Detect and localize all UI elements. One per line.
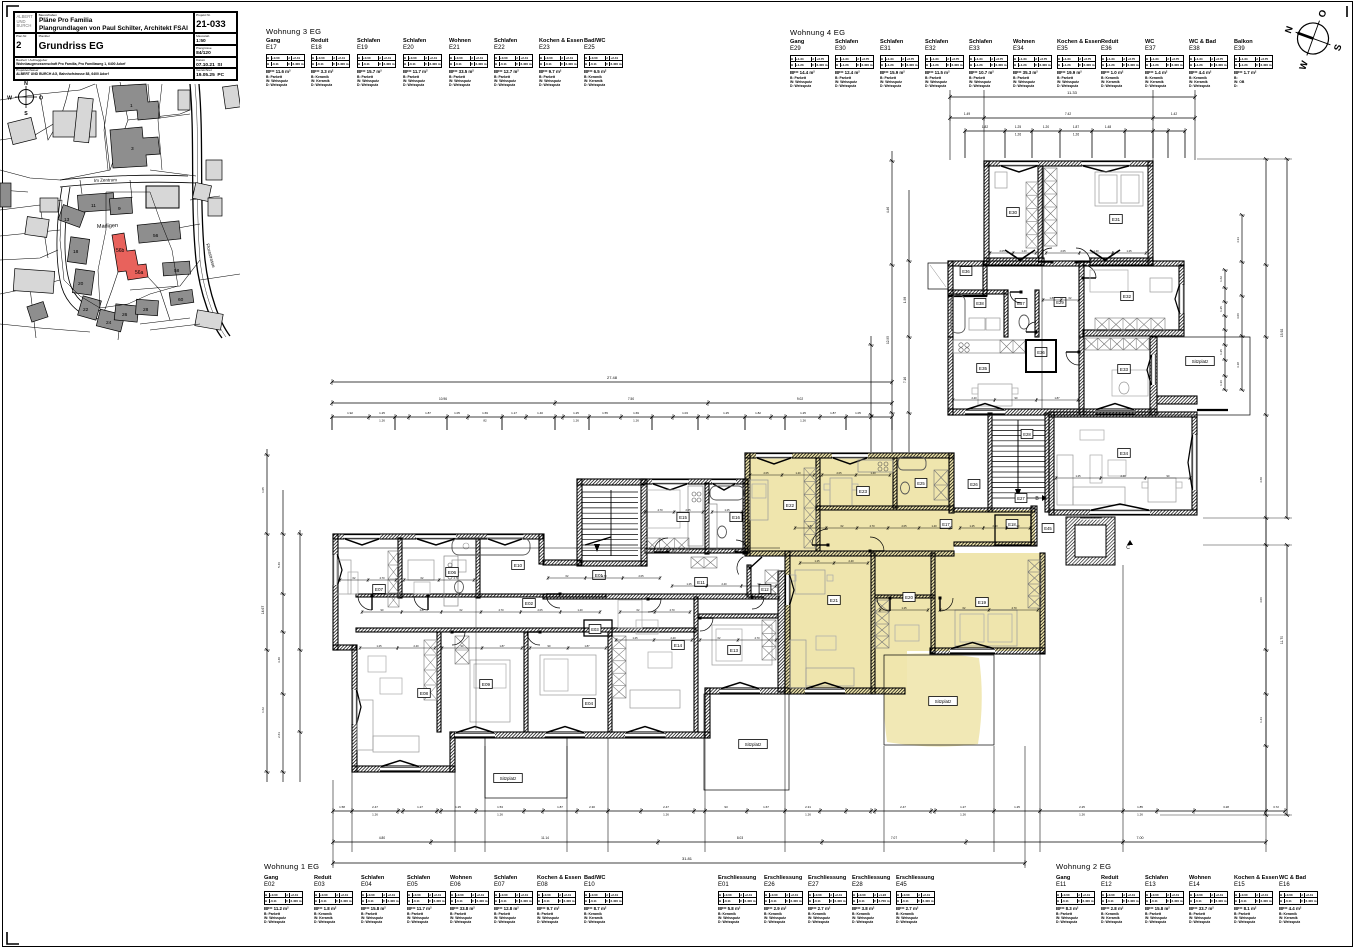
svg-text:4.70: 4.70 [498,608,504,612]
svg-text:14.67: 14.67 [261,606,265,615]
svg-text:4.06: 4.06 [1259,597,1263,603]
svg-text:2.05: 2.05 [763,471,769,475]
svg-text:1.26: 1.26 [379,419,385,423]
svg-text:E07: E07 [375,587,384,592]
svg-text:7.50: 7.50 [628,397,634,401]
svg-text:E26: E26 [970,482,978,487]
svg-text:1.25: 1.25 [455,805,461,809]
svg-text:1.27: 1.27 [417,805,423,809]
svg-text:2.05: 2.05 [685,508,691,512]
svg-text:1.26: 1.26 [960,813,966,817]
svg-text:E06: E06 [448,570,457,575]
svg-text:1.26: 1.26 [573,419,579,423]
svg-text:1.03: 1.03 [682,411,688,415]
svg-text:E02: E02 [525,601,534,606]
svg-text:2.61: 2.61 [277,732,281,738]
svg-text:1.36: 1.36 [1219,380,1223,386]
svg-text:2.40: 2.40 [413,644,419,648]
svg-text:1.26: 1.26 [663,813,669,817]
svg-text:1.25: 1.25 [1219,306,1223,312]
svg-text:2.30: 2.30 [589,805,595,809]
svg-text:1.87: 1.87 [1054,396,1060,400]
svg-text:E38: E38 [976,301,984,306]
svg-text:4.70: 4.70 [657,508,663,512]
svg-text:E37: E37 [1017,301,1025,306]
svg-text:7.16: 7.16 [903,377,907,383]
svg-text:E13: E13 [730,648,739,653]
svg-text:3.06: 3.06 [1236,313,1240,319]
svg-text:2.40: 2.40 [992,524,998,528]
svg-text:1.87: 1.87 [830,411,836,415]
svg-text:4.60: 4.60 [1259,477,1263,483]
svg-text:E20: E20 [905,595,913,600]
svg-text:1.25: 1.25 [1014,805,1020,809]
svg-text:2.40: 2.40 [670,636,676,640]
svg-text:2.05: 2.05 [638,574,644,578]
svg-text:1.26: 1.26 [1079,813,1085,817]
svg-text:E16: E16 [732,515,740,520]
svg-text:2.47: 2.47 [663,805,669,809]
svg-text:1.25: 1.25 [1219,349,1223,355]
svg-text:1.40: 1.40 [870,471,876,475]
svg-text:2.40: 2.40 [971,396,977,400]
svg-text:1.26: 1.26 [497,813,503,817]
svg-text:1.25: 1.25 [573,411,579,415]
svg-text:1.48: 1.48 [1105,125,1111,129]
svg-text:E19: E19 [978,600,987,605]
svg-text:1.05: 1.05 [855,411,861,415]
svg-text:62: 62 [421,576,424,580]
svg-text:4.70: 4.70 [453,576,459,580]
svg-text:4.80: 4.80 [379,836,385,840]
svg-text:1.87: 1.87 [557,805,563,809]
svg-text:90: 90 [1167,474,1170,478]
svg-text:1.87: 1.87 [584,644,590,648]
svg-text:1.43: 1.43 [1259,717,1263,723]
svg-text:E34: E34 [1120,451,1129,456]
svg-text:1.17: 1.17 [511,411,517,415]
svg-text:1.87: 1.87 [499,644,505,648]
svg-text:1.25: 1.25 [800,411,806,415]
svg-text:1.85: 1.85 [1137,805,1143,809]
svg-text:1.53: 1.53 [497,805,503,809]
svg-text:1.26: 1.26 [805,813,811,817]
svg-text:2.05: 2.05 [537,608,543,612]
svg-text:E32: E32 [1123,294,1132,299]
svg-text:1.25: 1.25 [376,644,382,648]
svg-text:E30: E30 [1009,210,1018,215]
svg-text:1.25: 1.25 [1015,125,1021,129]
svg-text:11.14: 11.14 [541,836,549,840]
svg-text:E33: E33 [1120,367,1129,372]
svg-text:1.92: 1.92 [347,411,353,415]
svg-text:62: 62 [460,608,463,612]
svg-text:1.26: 1.26 [800,419,806,423]
svg-text:2.40: 2.40 [848,559,854,563]
svg-text:B: B [1035,496,1039,502]
svg-text:4.46: 4.46 [886,207,890,213]
svg-text:2.31: 2.31 [805,805,811,809]
svg-text:E45: E45 [1044,526,1052,531]
svg-text:E08: E08 [420,691,429,696]
svg-text:1.62: 1.62 [1219,276,1223,282]
svg-text:4.70: 4.70 [754,636,760,640]
svg-text:2.05: 2.05 [1060,249,1066,253]
svg-text:90: 90 [548,644,551,648]
svg-text:9.02: 9.02 [797,397,803,401]
svg-text:7.00: 7.00 [1137,836,1144,840]
svg-text:1.40: 1.40 [1021,249,1027,253]
svg-text:1.55: 1.55 [602,411,608,415]
svg-text:1.40: 1.40 [537,411,543,415]
svg-text:10.96: 10.96 [439,397,447,401]
svg-text:4.70: 4.70 [669,608,675,612]
svg-text:1.40: 1.40 [795,471,801,475]
svg-text:1.40: 1.40 [931,524,937,528]
svg-text:2.05: 2.05 [836,471,842,475]
svg-text:1.26: 1.26 [1073,133,1079,137]
svg-text:1.25: 1.25 [814,559,820,563]
svg-text:E28: E28 [1023,432,1031,437]
svg-text:1.62: 1.62 [261,707,265,713]
svg-text:1.26: 1.26 [1137,813,1143,817]
svg-text:E36: E36 [1037,350,1045,355]
svg-text:1.25: 1.25 [632,636,638,640]
svg-text:1.25: 1.25 [1075,474,1081,478]
svg-text:4.70: 4.70 [601,574,607,578]
svg-text:E21: E21 [830,598,839,603]
svg-text:2.05: 2.05 [901,524,907,528]
svg-text:1.25: 1.25 [723,411,729,415]
svg-text:62: 62 [718,636,721,640]
svg-text:1.26: 1.26 [1015,133,1021,137]
svg-text:1.25: 1.25 [969,524,975,528]
svg-text:93: 93 [724,805,728,809]
svg-text:E25: E25 [917,481,925,486]
svg-text:1.26: 1.26 [372,813,378,817]
svg-text:11.33: 11.33 [1067,90,1077,95]
svg-text:12.95: 12.95 [886,336,890,344]
svg-text:E31: E31 [1112,217,1121,222]
svg-text:1.82: 1.82 [982,125,988,129]
svg-text:2.47: 2.47 [900,805,906,809]
svg-text:62: 62 [637,608,640,612]
svg-text:E35: E35 [979,366,988,371]
svg-text:1.87: 1.87 [1049,296,1055,300]
svg-text:1.05: 1.05 [454,411,460,415]
svg-text:1.82: 1.82 [755,411,761,415]
svg-text:E15: E15 [679,515,687,520]
svg-text:90: 90 [381,608,384,612]
svg-text:E14: E14 [674,643,683,648]
svg-text:4.33: 4.33 [1236,237,1240,243]
svg-text:4.70: 4.70 [379,576,385,580]
svg-text:1.05: 1.05 [261,487,265,493]
svg-text:1.26: 1.26 [633,419,639,423]
svg-text:2.25: 2.25 [1079,805,1085,809]
svg-text:1.42: 1.42 [1171,112,1177,116]
svg-text:1.25: 1.25 [379,411,385,415]
svg-text:E18: E18 [1008,522,1016,527]
svg-text:1.40: 1.40 [577,608,583,612]
svg-text:3.40: 3.40 [277,657,281,663]
svg-text:3.28: 3.28 [1223,805,1229,809]
svg-text:62: 62 [566,574,569,578]
svg-text:1.25: 1.25 [901,606,907,610]
svg-text:82: 82 [483,419,487,423]
svg-text:1.20: 1.20 [1043,125,1049,129]
svg-text:1.25: 1.25 [1126,249,1132,253]
svg-text:15.92: 15.92 [1280,329,1284,338]
svg-text:27.48: 27.48 [607,375,618,380]
svg-text:1.69: 1.69 [633,411,639,415]
svg-text:1.25: 1.25 [724,508,730,512]
svg-text:62: 62 [353,576,356,580]
svg-text:E27: E27 [1017,496,1025,501]
svg-text:1.49: 1.49 [964,112,970,116]
svg-text:E22: E22 [786,503,795,508]
svg-text:7.42: 7.42 [1065,112,1071,116]
svg-text:7.07: 7.07 [891,836,897,840]
svg-text:Sitzplatz: Sitzplatz [1192,359,1209,364]
svg-text:1.58: 1.58 [339,805,345,809]
svg-text:4.70: 4.70 [1011,606,1017,610]
svg-text:2.40: 2.40 [1120,474,1126,478]
svg-text:1.27: 1.27 [960,805,966,809]
svg-text:E09: E09 [482,682,491,687]
svg-text:E10: E10 [514,563,523,568]
svg-text:E12: E12 [761,587,769,592]
svg-text:31.81: 31.81 [682,856,693,861]
svg-text:1.87: 1.87 [807,524,813,528]
svg-text:C: C [1126,545,1130,551]
svg-text:5.46: 5.46 [277,562,281,568]
svg-text:1.87: 1.87 [1073,125,1079,129]
svg-text:2.47: 2.47 [372,805,378,809]
svg-text:Sitzplatz: Sitzplatz [745,742,762,747]
svg-text:E36: E36 [962,269,970,274]
svg-text:E04: E04 [585,701,594,706]
svg-text:1.98: 1.98 [903,297,907,303]
svg-text:90: 90 [1015,396,1018,400]
svg-text:E23: E23 [859,489,868,494]
svg-text:62: 62 [1069,296,1072,300]
svg-text:1.40: 1.40 [1093,249,1099,253]
svg-text:1.69: 1.69 [482,411,488,415]
svg-text:11.70: 11.70 [1280,636,1284,644]
svg-text:2.05: 2.05 [999,249,1005,253]
svg-text:3.18: 3.18 [1236,362,1240,368]
svg-text:1.67: 1.67 [763,805,769,809]
svg-text:1.25: 1.25 [686,582,692,586]
svg-text:E03: E03 [591,627,599,632]
svg-text:1.87: 1.87 [425,411,431,415]
svg-text:4.70: 4.70 [869,524,875,528]
svg-text:3.72: 3.72 [1273,805,1279,809]
svg-text:8.03: 8.03 [737,836,743,840]
svg-text:1.87: 1.87 [419,608,425,612]
svg-text:Sitzplatz: Sitzplatz [935,699,952,704]
svg-text:2.40: 2.40 [721,582,727,586]
svg-text:E17: E17 [942,522,950,527]
svg-text:E11: E11 [697,580,705,585]
svg-text:Sitzplatz: Sitzplatz [500,776,517,781]
